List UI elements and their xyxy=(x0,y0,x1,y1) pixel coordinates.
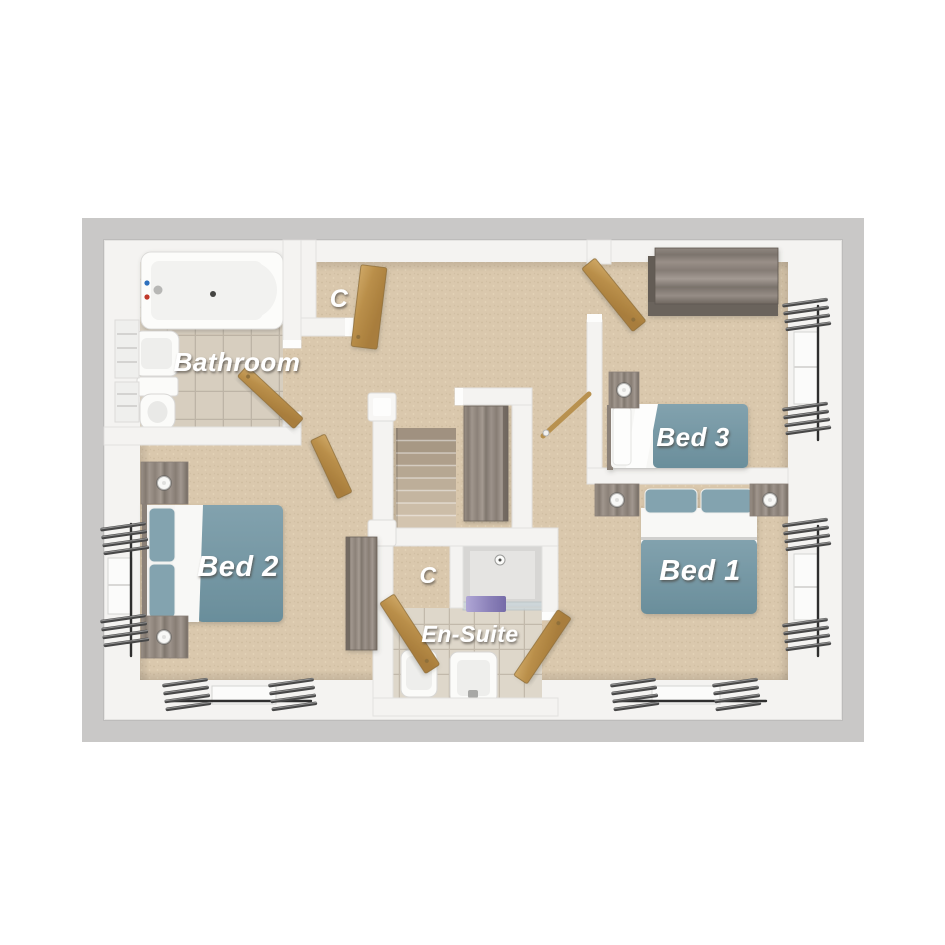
lamp xyxy=(162,635,166,639)
floor-plan: Bathroom C C En-Suite Bed 3 Bed 2 Bed 1 xyxy=(0,0,945,945)
bathroom-basin xyxy=(134,331,179,376)
wall xyxy=(450,546,463,608)
wall xyxy=(373,528,558,546)
wall xyxy=(373,698,558,716)
lamp xyxy=(622,388,626,392)
closet-top-label: C xyxy=(330,285,349,313)
bedside-table xyxy=(750,484,788,516)
bedside-table xyxy=(595,484,639,516)
bathroom-label: Bathroom xyxy=(174,347,301,377)
bathroom-toilet xyxy=(137,377,178,430)
wall xyxy=(542,546,558,620)
wall xyxy=(104,427,301,445)
bed-1-label: Bed 1 xyxy=(659,555,740,587)
bedside-table xyxy=(609,372,639,408)
bathroom xyxy=(115,252,283,430)
closet-middle-label: C xyxy=(419,562,436,588)
bedside-table xyxy=(141,462,188,504)
pillow xyxy=(701,489,753,513)
floor-plan-canvas: Bathroom C C En-Suite Bed 3 Bed 2 Bed 1 xyxy=(0,0,945,945)
pillow xyxy=(613,407,631,465)
wall xyxy=(283,240,301,348)
bed-3-label: Bed 3 xyxy=(656,422,729,452)
bath-faucet xyxy=(154,286,163,295)
lamp xyxy=(768,498,772,502)
pillow xyxy=(149,508,175,562)
wardrobe xyxy=(648,248,778,316)
bed2-cabinet xyxy=(346,537,377,650)
bedside-table xyxy=(141,616,188,658)
wall xyxy=(587,468,788,484)
pillow xyxy=(149,564,175,618)
wall xyxy=(512,405,532,528)
radiator xyxy=(115,320,139,422)
shower-mat xyxy=(466,596,506,612)
wall xyxy=(455,388,532,405)
shower xyxy=(463,546,542,612)
bed-2-label: Bed 2 xyxy=(197,551,278,583)
storage-cabinet xyxy=(464,406,508,521)
newel-post-top xyxy=(368,393,396,421)
bathtub xyxy=(141,252,283,329)
wall xyxy=(587,240,611,264)
staircase xyxy=(393,428,456,528)
ensuite-label: En-Suite xyxy=(421,621,518,647)
lamp xyxy=(615,498,619,502)
lamp xyxy=(162,481,166,485)
pillow xyxy=(645,489,697,513)
